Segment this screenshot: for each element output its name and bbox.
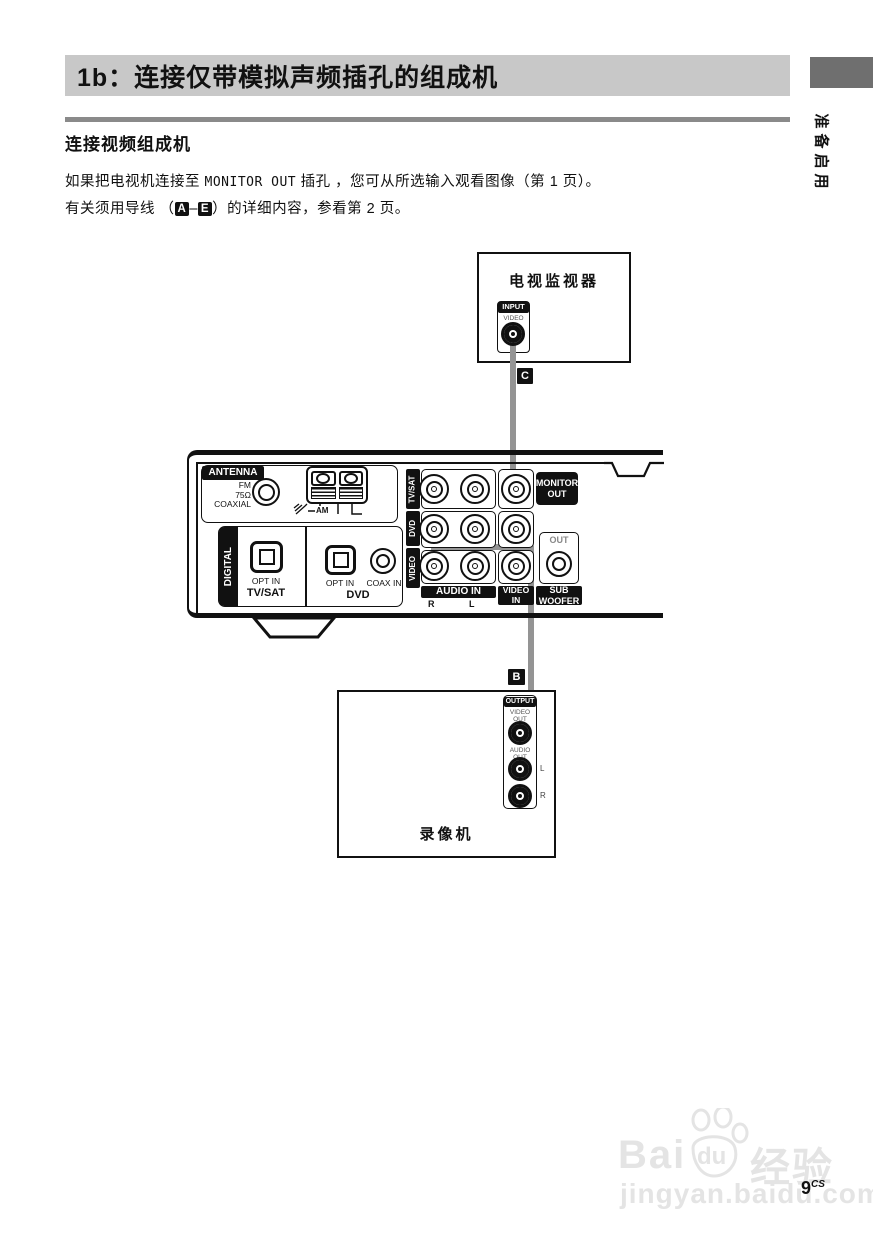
opt-in-tvsat-jack: [250, 541, 283, 573]
tvsat-audio-r-jack: [419, 474, 449, 504]
vcr-l-label: L: [540, 764, 544, 773]
vcr-video-out-jack: [508, 721, 532, 745]
digital-label: DIGITAL: [219, 527, 238, 606]
video-audio-l-jack: [460, 551, 490, 581]
dvd-audio-l-jack: [460, 514, 490, 544]
monitor-out-ref: MONITOR OUT: [205, 175, 297, 190]
receiver-panel-line: [196, 462, 608, 464]
tv-monitor-label: 电视监视器: [477, 270, 631, 291]
dvd-video-jack: [501, 514, 531, 544]
vcr-audio-out-l-jack: [508, 757, 532, 781]
audio-in-r: R: [428, 599, 435, 609]
am-terminals: [306, 466, 368, 504]
am-terminal-clip: [339, 487, 364, 499]
opt-in-dvd-jack: [325, 545, 356, 575]
row-label-video: VIDEO: [406, 548, 420, 588]
subwoofer-label: SUB WOOFER: [536, 586, 582, 605]
section-tab-marker: [810, 57, 873, 88]
dvd-audio-r-jack: [419, 514, 449, 544]
manual-page: 1b：连接仅带模拟声频插孔的组成机 准备启用 连接视频组成机 如果把电视机连接至…: [0, 0, 873, 1240]
opt-in-dvd-label: OPT IN: [315, 578, 365, 588]
video-in-label: VIDEO IN: [498, 586, 534, 605]
receiver-top-notch: [604, 459, 664, 481]
page-number-suffix: CS: [811, 1179, 825, 1190]
cable-b-badge: B: [508, 669, 525, 685]
tv-video-label: VIDEO: [497, 315, 530, 322]
coax-in-label: COAX IN: [360, 578, 408, 588]
page-number: 9CS: [801, 1178, 825, 1199]
vcr-label: 录像机: [337, 823, 556, 844]
tv-video-input-jack: [501, 322, 525, 346]
am-label: AM: [315, 506, 329, 515]
row-label-tvsat: TV/SAT: [406, 469, 420, 509]
side-tab-label: 准备启用: [800, 98, 844, 208]
vcr-audio-out-r-jack: [508, 784, 532, 808]
monitor-out-label: MONITOR OUT: [536, 472, 578, 505]
antenna-label: ANTENNA: [202, 466, 264, 480]
am-terminal-clip: [311, 487, 336, 499]
am-terminal-hole: [311, 471, 336, 486]
vcr-r-label: R: [540, 791, 546, 800]
opt-in-tvsat-label: OPT IN: [240, 576, 292, 586]
receiver-panel-line-left: [196, 462, 198, 613]
watermark-brand: Bai: [618, 1133, 686, 1178]
watermark-brand-du: du: [697, 1143, 726, 1171]
section-heading: 连接视频组成机: [65, 130, 191, 155]
subwoofer-jack: [546, 551, 572, 577]
monitor-out-jack: [501, 474, 531, 504]
audio-in-label: AUDIO IN: [421, 586, 496, 598]
tvsat-audio-l-jack: [460, 474, 490, 504]
cable-a-badge: A: [175, 202, 190, 216]
tvsat-section-label: TV/SAT: [240, 587, 292, 599]
video-in-jack: [501, 551, 531, 581]
am-terminal-hole: [339, 471, 364, 486]
paragraph-1: 如果把电视机连接至 MONITOR OUT 插孔 ，您可从所选输入观看图像（第 …: [65, 170, 795, 191]
coax-in-jack: [370, 548, 396, 574]
fm-coaxial-jack: [252, 478, 280, 506]
cable-c-badge: C: [517, 368, 533, 384]
chapter-title-bar: 1b：连接仅带模拟声频插孔的组成机: [65, 55, 790, 96]
vcr-output-label: OUTPUT: [504, 697, 536, 707]
chapter-title: 1b：连接仅带模拟声频插孔的组成机: [77, 58, 498, 94]
am-ground-icon: [292, 502, 378, 520]
digital-divider: [305, 527, 307, 606]
subwoofer-out-label: OUT: [539, 535, 579, 545]
paragraph-2: 有关须用导线 （A–E）的详细内容，参看第 2 页。: [65, 197, 795, 218]
video-audio-r-jack: [419, 551, 449, 581]
audio-in-l: L: [469, 599, 475, 609]
watermark-url: jingyan.baidu.com: [620, 1178, 873, 1210]
cable-e-badge: E: [198, 202, 212, 216]
dvd-section-label: DVD: [330, 589, 386, 601]
section-divider: [65, 117, 790, 122]
receiver-foot: [246, 616, 342, 642]
fm-label-block: FM 75Ω COAXIAL: [203, 481, 251, 510]
row-label-dvd: DVD: [406, 511, 420, 546]
tv-input-label: INPUT: [498, 302, 529, 313]
